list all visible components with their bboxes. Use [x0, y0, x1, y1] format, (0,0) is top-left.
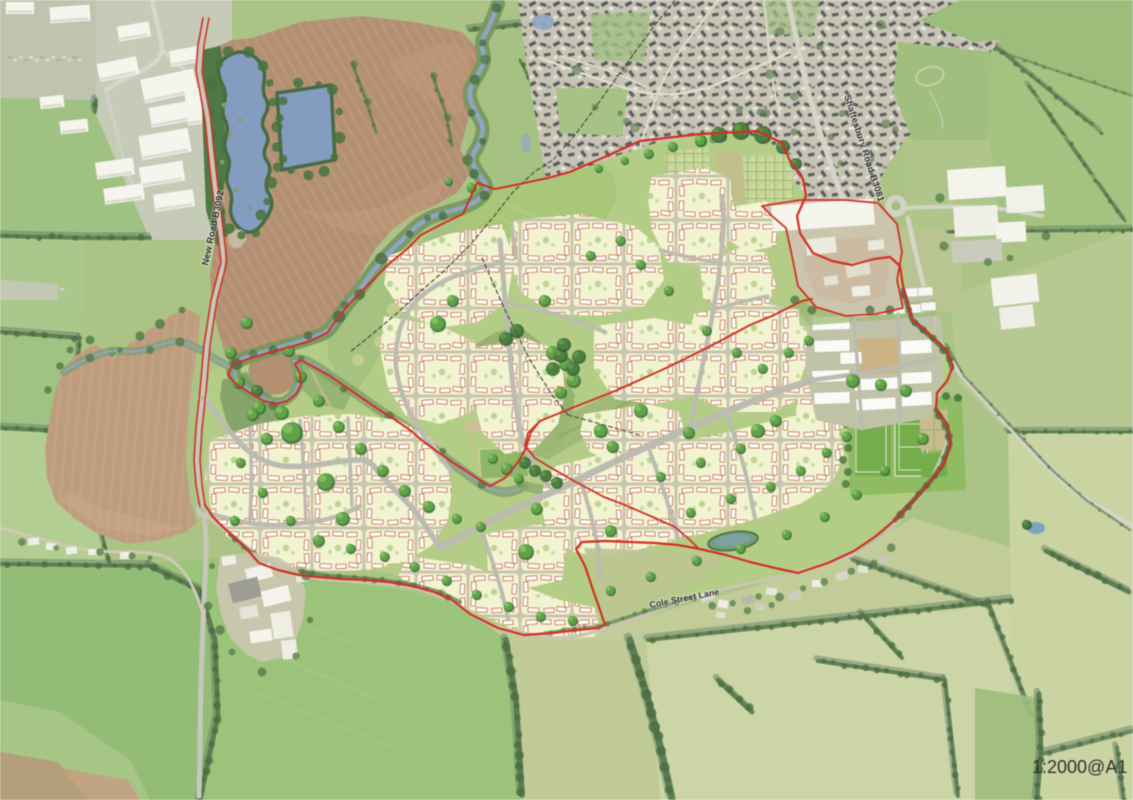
svg-text:1:2000@A1: 1:2000@A1 [1032, 757, 1127, 777]
